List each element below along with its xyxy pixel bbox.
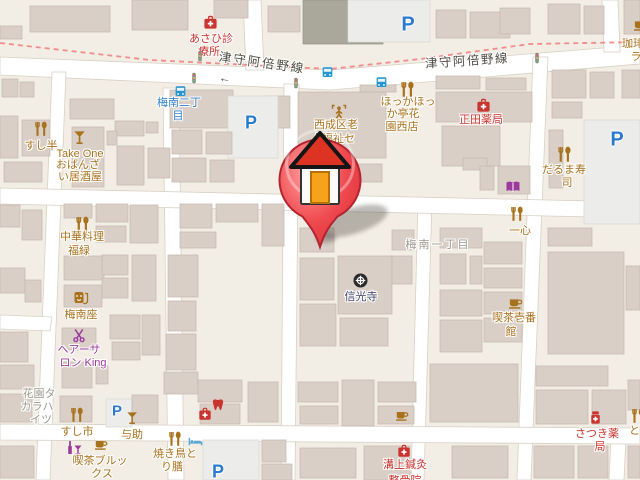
signal-icon <box>290 76 302 94</box>
poi-label: 溝上鍼灸 <box>383 459 427 471</box>
parking-icon[interactable]: P <box>112 403 122 420</box>
bus-icon <box>321 66 334 84</box>
restaurant-icon <box>509 206 525 227</box>
book-icon <box>505 179 521 200</box>
restaurant-icon <box>69 407 85 428</box>
signal-icon <box>194 49 206 67</box>
poi-label: 局 <box>595 441 606 453</box>
poi-layer: あさひ診療所P梅南二丁目津守阿倍野線←津守阿倍野線ほっかほっか亭花園西店正田薬局… <box>0 0 640 480</box>
medicine-icon <box>588 410 603 430</box>
poi-label: イツ <box>30 414 52 426</box>
poi-label: あさひ診 <box>189 33 233 45</box>
cocktail-icon <box>126 411 140 430</box>
poi-label: 人福祉セ <box>311 133 355 145</box>
poi-label: 喫茶ブルッ <box>73 455 128 467</box>
bus-icon <box>375 76 388 94</box>
poi-label: 西成区老 <box>314 119 358 131</box>
poi-label: クス <box>91 468 113 480</box>
poi-label: ヘアーサ <box>57 344 100 356</box>
poi-label: 館 <box>506 326 517 338</box>
poi-label: カラハ <box>21 401 54 413</box>
poi-label: とり <box>629 425 640 437</box>
poi-label: ラ <box>631 51 640 63</box>
poi-label: 珈琲 <box>622 38 640 50</box>
cafe-icon <box>94 437 108 456</box>
poi-label: だるま寿 <box>542 164 586 176</box>
poi-label: い居酒屋 <box>58 171 102 183</box>
poi-label: 喫茶壱番 <box>492 312 536 324</box>
poi-label: 中華料理 <box>60 231 104 243</box>
poi-label: ほっかほっ <box>381 96 436 108</box>
poi-label: すし市 <box>61 426 94 438</box>
tooth-icon <box>211 398 225 417</box>
poi-label: 信光寺 <box>345 291 378 303</box>
poi-label: 目 <box>173 110 184 122</box>
poi-label: 整骨院 <box>389 475 422 480</box>
map-viewport: あさひ診療所P梅南二丁目津守阿倍野線←津守阿倍野線ほっかほっか亭花園西店正田薬局… <box>0 0 640 480</box>
parking-icon[interactable]: P <box>401 14 414 37</box>
firstaid-icon <box>198 407 212 426</box>
parking-icon[interactable]: P <box>245 113 257 134</box>
firstaid-icon <box>203 15 218 35</box>
poi-label: 福緑 <box>68 245 90 257</box>
poi-label: 正田薬局 <box>459 114 503 126</box>
poi-label: さつき薬 <box>575 428 619 440</box>
poi-label: 津守阿倍野線 <box>425 52 510 70</box>
poi-label: おばんざ <box>56 159 100 171</box>
poi-label: 梅南二丁 <box>157 97 201 109</box>
poi-label: ← <box>218 71 232 85</box>
poi-label: 梅南一丁目 <box>406 239 471 251</box>
poi-label: すし半 <box>25 140 58 152</box>
poi-label: 梅南座 <box>65 309 98 321</box>
parking-icon[interactable]: P <box>610 129 623 152</box>
restaurant-icon <box>33 121 49 142</box>
theater-icon <box>73 290 89 311</box>
cafe-icon <box>395 408 409 427</box>
poi-label: ロン King <box>59 357 106 369</box>
parking-icon[interactable]: P <box>212 462 224 480</box>
poi-label: 焼き鳥と <box>153 448 197 460</box>
poi-label: 司 <box>562 177 573 189</box>
poi-label: 一心 <box>509 225 531 237</box>
signal-icon <box>531 51 543 69</box>
poi-label: トレ <box>281 186 303 198</box>
signal-icon <box>188 71 200 89</box>
cocktail-icon <box>73 130 88 150</box>
poi-label: 与助 <box>121 429 143 441</box>
poi-label: 園西店 <box>386 121 419 133</box>
cafe-icon <box>633 17 640 37</box>
poi-label: か亭花 <box>387 108 420 120</box>
poi-label: 花園タ <box>23 388 56 400</box>
poi-label: り膳 <box>161 461 183 473</box>
